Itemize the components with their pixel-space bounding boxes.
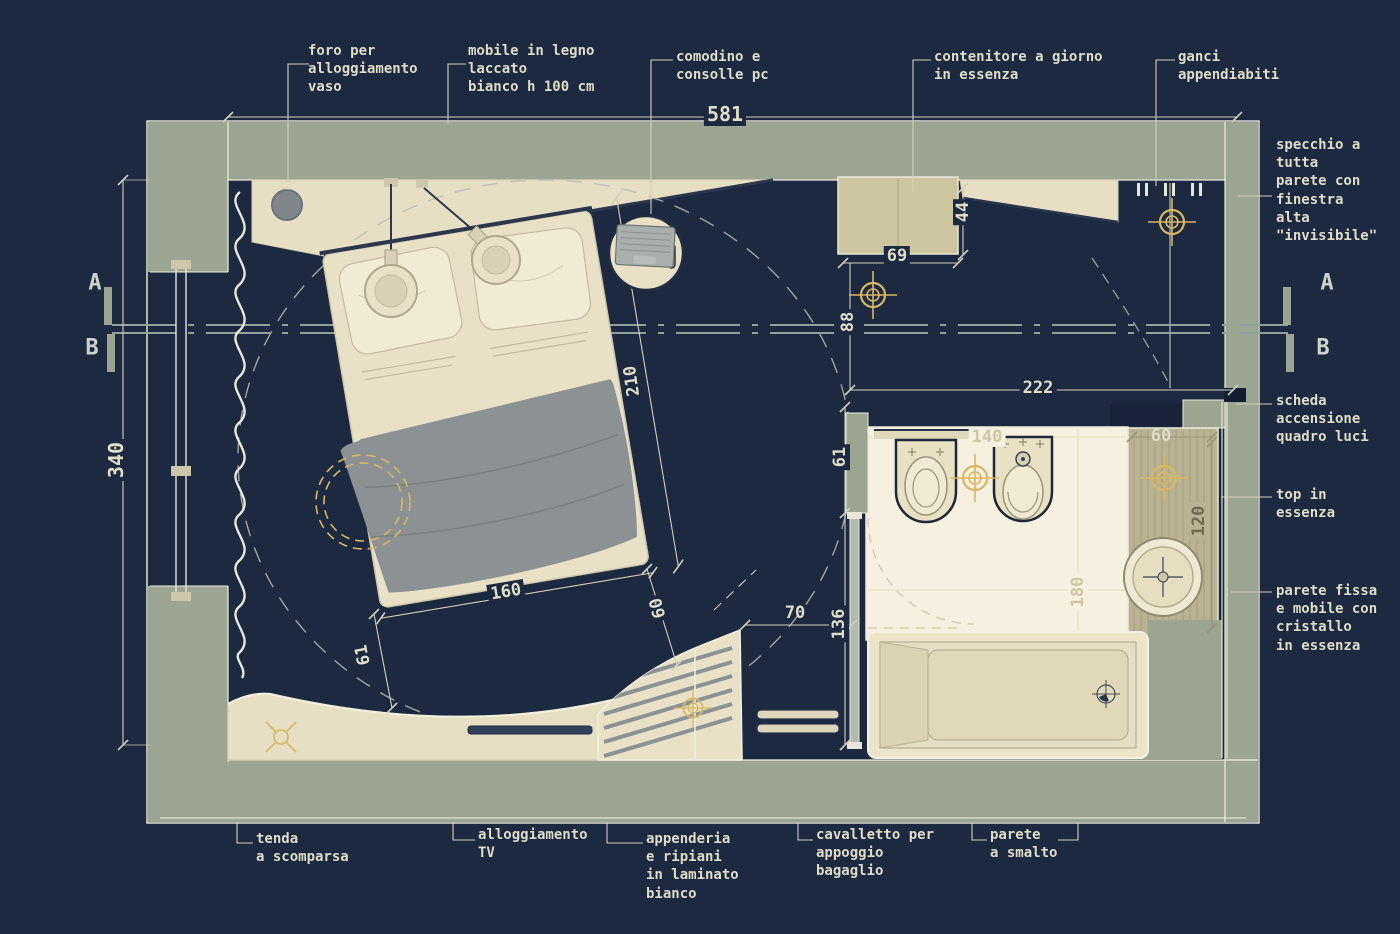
section-letter-a-right: A [1320, 271, 1333, 296]
side-table-laptop [609, 216, 683, 290]
sink [1124, 538, 1202, 616]
dim-bath-140: 140 [969, 427, 1006, 447]
label-specchio: specchio a tutta parete con finestra alt… [1276, 136, 1377, 245]
dim-total-width: 581 [704, 102, 746, 126]
section-letter-b-right: B [1316, 336, 1329, 361]
dim-bath-width: 222 [1020, 378, 1057, 398]
floor-plan-drawing [0, 0, 1400, 934]
toilet [896, 440, 956, 522]
label-foro-vaso: foro per alloggiamento vaso [308, 42, 418, 97]
section-letter-a-left: A [88, 271, 101, 296]
label-top-essenza: top in essenza [1276, 486, 1335, 522]
pocket-door [850, 516, 859, 746]
bidet [994, 437, 1052, 521]
dim-top-120: 120 [1189, 503, 1209, 540]
dim-container-width: 69 [884, 246, 910, 266]
dim-niche-61: 61 [830, 444, 850, 470]
floor-plan-stage: foro per alloggiamento vaso mobile in le… [0, 0, 1400, 934]
label-tv: alloggiamento TV [478, 826, 588, 862]
label-contenitore: contenitore a giorno in essenza [934, 48, 1103, 84]
label-parete-smalto: parete a smalto [990, 826, 1057, 862]
label-mobile-legno: mobile in legno laccato bianco h 100 cm [468, 42, 594, 97]
tv-slot [468, 726, 592, 734]
label-parete-fissa: parete fissa e mobile con cristallo in e… [1276, 582, 1377, 655]
label-comodino: comodino e consolle pc [676, 48, 769, 84]
label-appenderia: appenderia e ripiani in laminato bianco [646, 830, 739, 903]
vase-hole [272, 190, 302, 220]
label-scheda: scheda accensione quadro luci [1276, 392, 1369, 447]
label-ganci: ganci appendiabiti [1178, 48, 1279, 84]
label-cavalletto: cavalletto per appoggio bagaglio [816, 826, 934, 881]
dim-88: 88 [838, 309, 858, 335]
dim-bath-180: 180 [1068, 574, 1088, 611]
label-tenda: tenda a scomparsa [256, 830, 349, 866]
open-container [838, 177, 958, 254]
section-letter-b-left: B [85, 336, 98, 361]
dim-door-136: 136 [829, 606, 849, 643]
dim-container-depth: 44 [953, 199, 973, 225]
bathtub [868, 632, 1148, 758]
dim-top-60: 60 [1148, 426, 1174, 446]
dim-total-height: 340 [104, 439, 128, 481]
dim-opening-70: 70 [782, 603, 808, 623]
